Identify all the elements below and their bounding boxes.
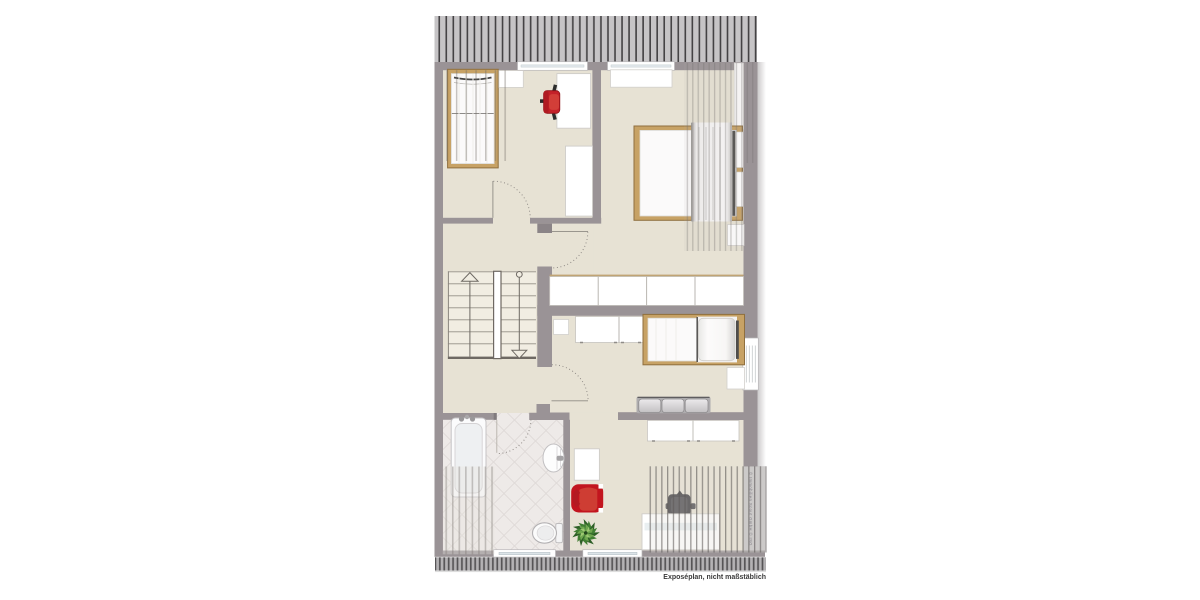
svg-text:© Immobilien Scout GmbH © ISG: © Immobilien Scout GmbH © ISG xyxy=(748,472,753,546)
svg-text:Exposéplan, nicht maßstäblich: Exposéplan, nicht maßstäblich xyxy=(663,574,766,581)
